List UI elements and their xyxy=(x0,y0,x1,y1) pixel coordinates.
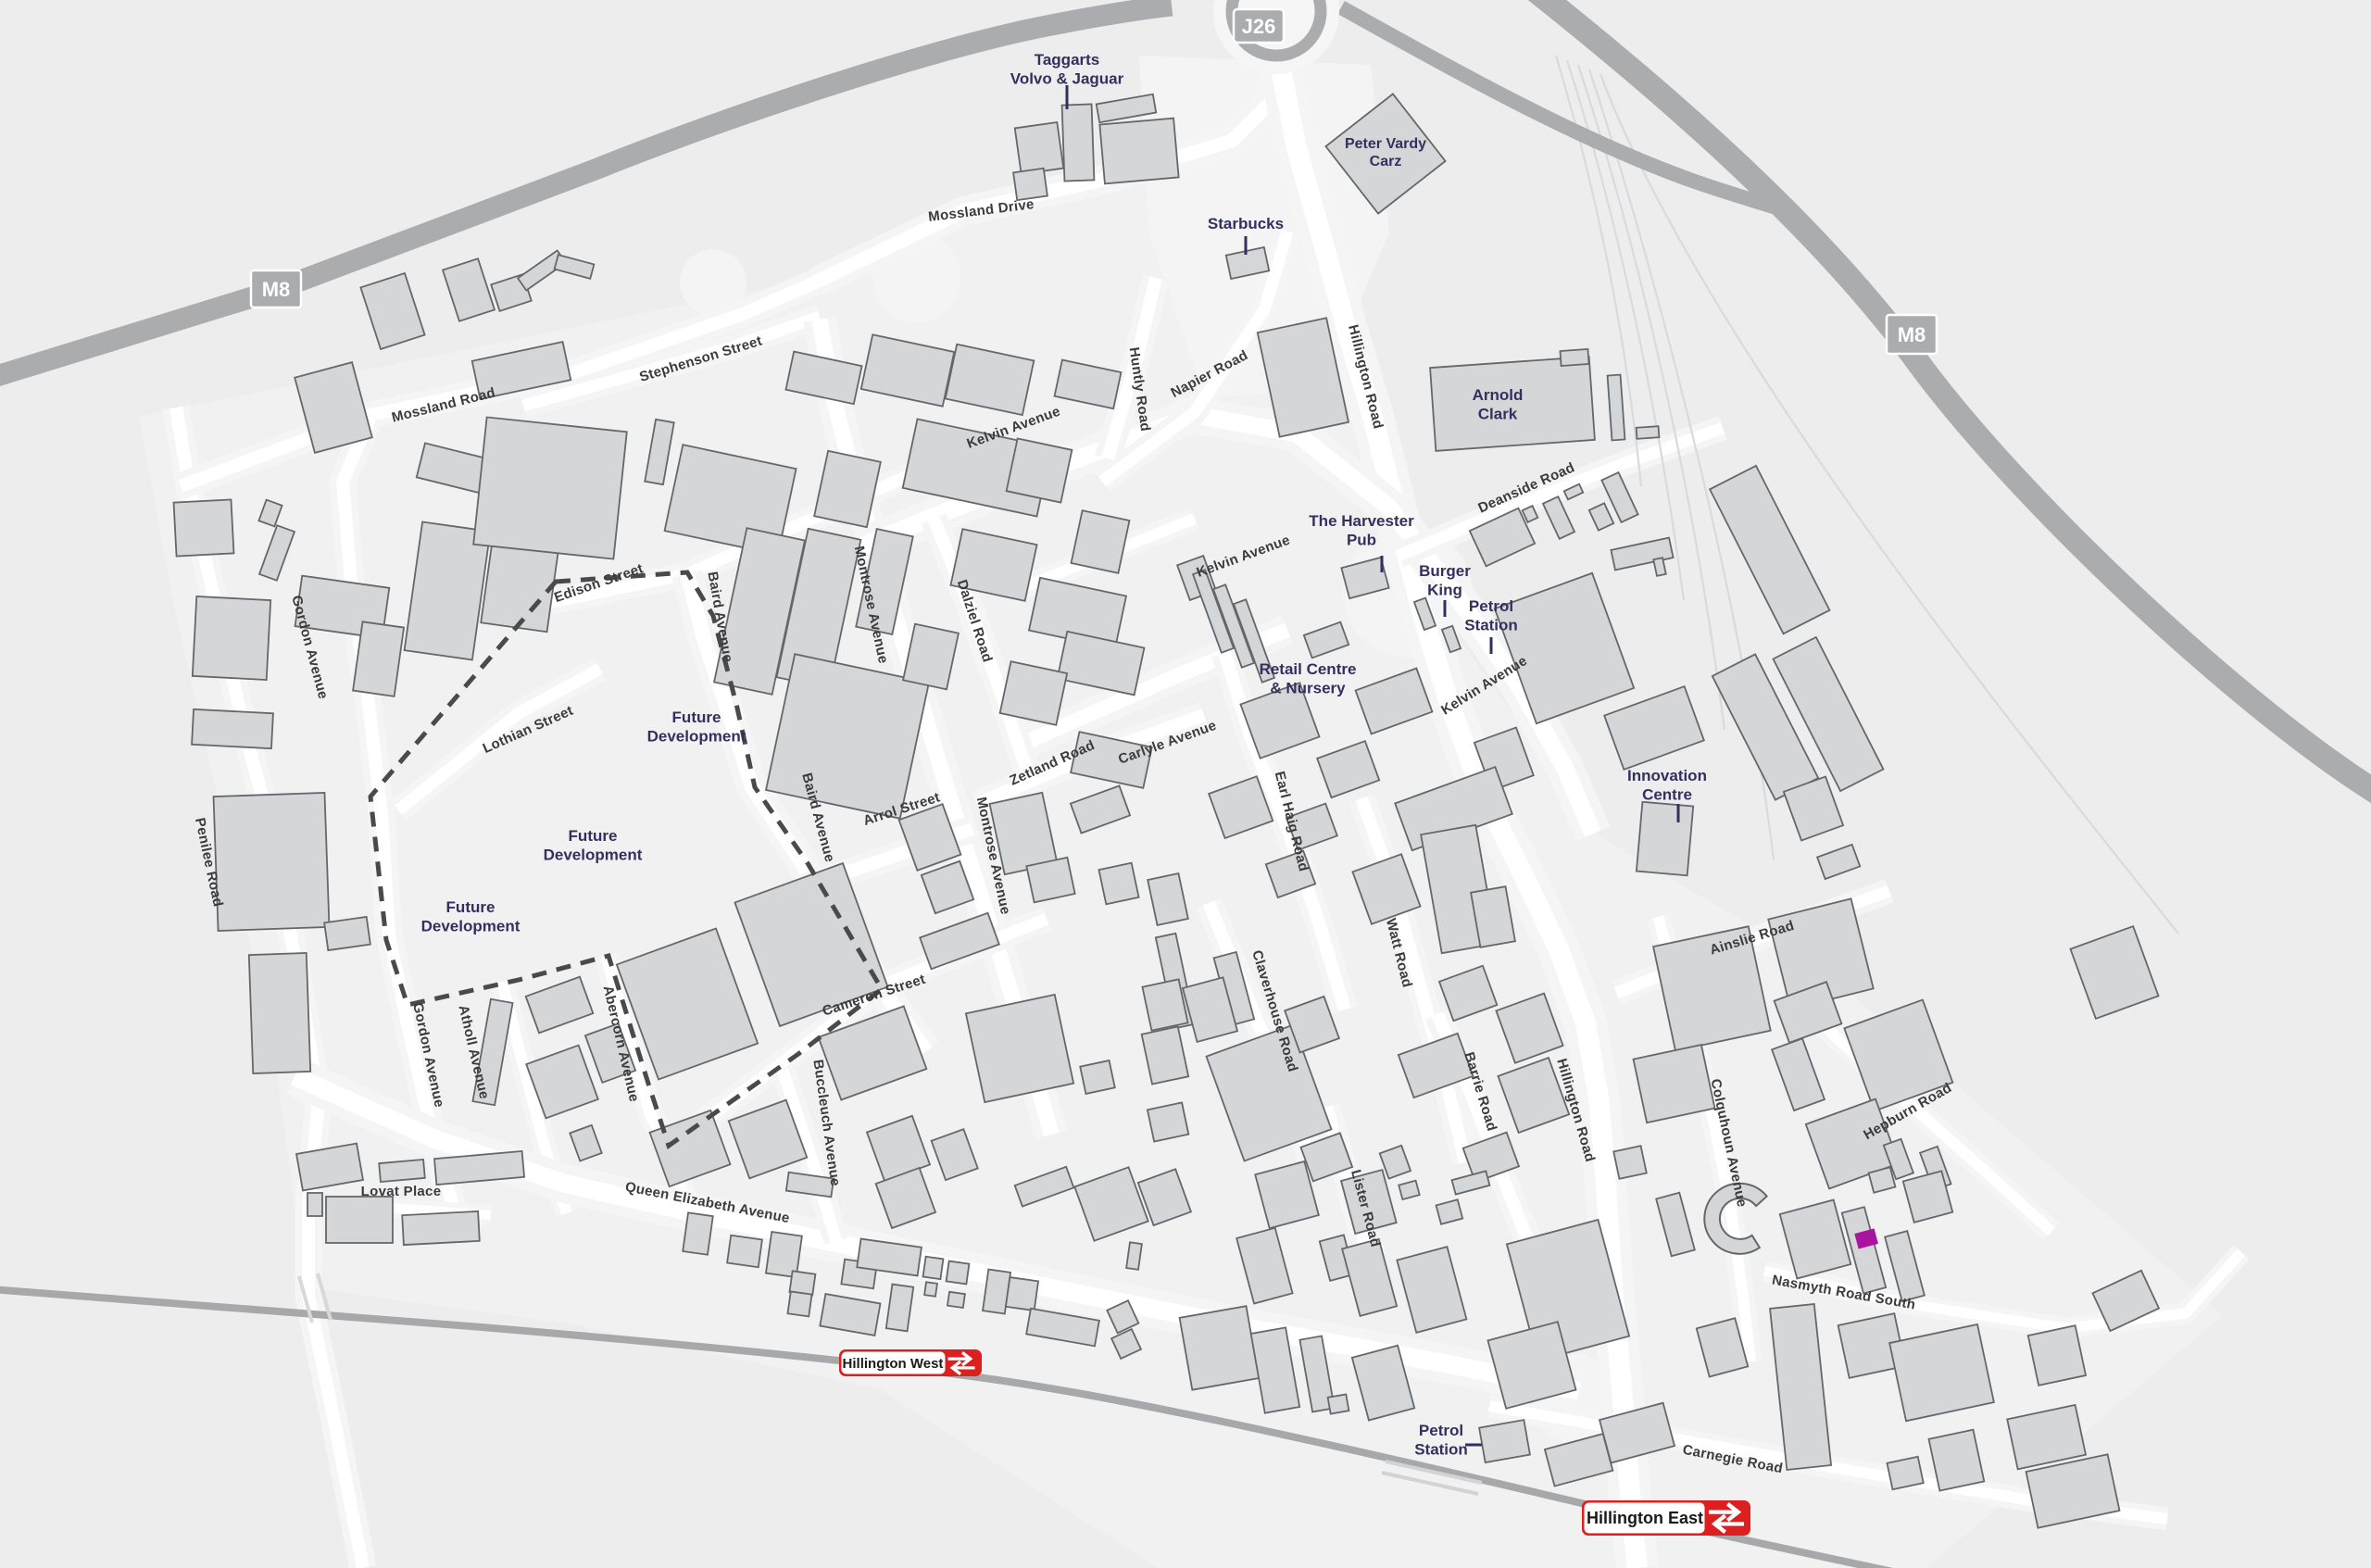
svg-text:Centre: Centre xyxy=(1642,785,1692,803)
svg-text:Lovat Place: Lovat Place xyxy=(361,1184,442,1199)
svg-text:Carz: Carz xyxy=(1370,154,1402,169)
svg-text:Hillington East: Hillington East xyxy=(1587,1509,1703,1527)
svg-text:King: King xyxy=(1427,581,1462,598)
svg-text:M8: M8 xyxy=(1898,323,1926,346)
svg-text:Station: Station xyxy=(1414,1440,1468,1458)
svg-text:Future: Future xyxy=(672,709,721,726)
svg-text:& Nursery: & Nursery xyxy=(1270,679,1346,696)
svg-text:Future: Future xyxy=(569,827,618,845)
svg-text:Station: Station xyxy=(1464,616,1518,633)
svg-text:Hillington West: Hillington West xyxy=(843,1356,944,1372)
svg-text:Taggarts: Taggarts xyxy=(1035,51,1100,69)
svg-text:Development: Development xyxy=(647,727,746,745)
svg-text:M8: M8 xyxy=(262,278,291,301)
svg-text:Development: Development xyxy=(421,917,521,935)
svg-text:Petrol: Petrol xyxy=(1419,1422,1463,1439)
svg-text:Clark: Clark xyxy=(1478,405,1518,422)
svg-text:Burger: Burger xyxy=(1419,562,1471,580)
svg-text:Innovation: Innovation xyxy=(1627,767,1707,784)
svg-text:Future: Future xyxy=(446,898,496,916)
svg-text:Arnold: Arnold xyxy=(1473,386,1524,404)
svg-text:Petrol: Petrol xyxy=(1469,597,1513,615)
svg-text:Volvo & Jaguar: Volvo & Jaguar xyxy=(1010,69,1124,87)
svg-text:Peter Vardy: Peter Vardy xyxy=(1345,136,1426,152)
svg-text:Retail Centre: Retail Centre xyxy=(1260,660,1357,678)
svg-text:The Harvester: The Harvester xyxy=(1309,512,1414,530)
svg-text:Development: Development xyxy=(544,846,643,863)
svg-text:J26: J26 xyxy=(1242,15,1276,38)
svg-text:Pub: Pub xyxy=(1347,531,1376,548)
svg-text:Starbucks: Starbucks xyxy=(1208,215,1284,232)
